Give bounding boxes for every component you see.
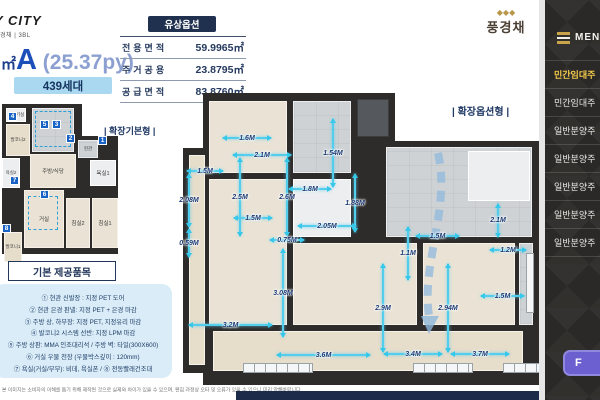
provided-item: ⑦ 욕실(거실/부부): 비데, 욕실폰 / ⑧ 전동빨래건조대	[0, 364, 172, 376]
dimension-marker: 2.94M	[442, 263, 454, 353]
floorplan-basic: 실외기실발코니2주방/식당현관욕실1욕실2거실침실2침실1발코니1 123456…	[2, 100, 118, 258]
sidebar-menu: 민간임대주 민간임대주 일반분양주 일반분양주 일반분양주 일반분양주 일반분양…	[545, 60, 600, 257]
dimension-marker: 3.7M	[450, 348, 510, 360]
dimension-label: 2.08M	[179, 197, 198, 204]
dimension-marker: 1.54M	[327, 118, 339, 188]
dimension-label: 2.1M	[490, 217, 506, 224]
dimension-marker: 1.6M	[222, 132, 272, 144]
sidebar-menu-item-label: 민간임대주	[554, 96, 595, 109]
sidebar-menu-item[interactable]: 일반분양주	[545, 229, 600, 257]
dimension-label: 1.88M	[345, 200, 364, 207]
dimension-label: 3.6M	[316, 352, 332, 359]
provided-item: ③ 주방 상, 하부장: 지정 PET, 지정유리 마감	[0, 317, 172, 329]
sidebar-menu-item-label: 일반분양주	[554, 236, 595, 249]
item-number-badge: 6	[40, 190, 49, 199]
sidebar-menu-item[interactable]: 일반분양주	[545, 201, 600, 229]
item-number-badge: 7	[10, 176, 19, 185]
dimension-label: 2.9M	[375, 305, 391, 312]
sidebar-menu-item[interactable]: 일반분양주	[545, 173, 600, 201]
dimension-marker: 0.59M	[183, 228, 195, 258]
provided-items-panel: ① 현관 신발장 : 지정 PET 도어② 현관 은경 판넬: 지정 PET +…	[0, 284, 172, 378]
dimension-label: 1.6M	[239, 135, 255, 142]
sidebar-menu-item[interactable]: 일반분양주	[545, 145, 600, 173]
dimension-marker: 1.5M	[480, 290, 525, 302]
dimension-marker: 2.5M	[234, 157, 246, 237]
sidebar-menu-item-label: 일반분양주	[554, 152, 595, 165]
dimension-marker: 2.1M	[492, 203, 504, 238]
dimension-marker: 1.5M	[415, 230, 460, 242]
left-plan-badges: 12345678	[2, 100, 118, 258]
sidebar-menu-item-label: 일반분양주	[554, 124, 595, 137]
dimension-label: 1.5M	[197, 168, 213, 175]
dimension-marker: 1.5M	[233, 212, 273, 224]
brand-emblem-icon: ◆◆◆	[474, 8, 538, 17]
sidebar-menu-item[interactable]: 민간임대주	[545, 89, 600, 117]
dimension-marker: 2.08M	[183, 173, 195, 228]
provided-item: ⑤ 주방 상판: MMA 인조대리석 / 주방 벽: 타일(300X600)	[0, 340, 172, 352]
provided-items-list: ① 현관 신발장 : 지정 PET 도어② 현관 은경 판넬: 지정 PET +…	[0, 293, 172, 376]
area-value: 59.9965㎡	[196, 40, 244, 55]
dimension-marker: 2.6M	[281, 157, 293, 237]
city-logo-subtext: 풍경채 | 3BL	[0, 30, 42, 39]
dimension-marker: 2.05M	[297, 220, 357, 232]
dimension-marker: 3.6M	[276, 349, 371, 361]
dimension-marker: 3.2M	[188, 319, 273, 331]
area-label: 공급면적	[122, 85, 167, 98]
bottom-bar	[236, 391, 540, 400]
item-number-badge: 1	[98, 136, 107, 145]
item-number-badge: 8	[2, 224, 11, 233]
dimension-label: 2.1M	[254, 152, 270, 159]
dimension-layer: 1.6M 2.1M 1.54M 1.5M 2.08M 0.59M 2.5M	[183, 93, 540, 385]
floorplan-option: 1.6M 2.1M 1.54M 1.5M 2.08M 0.59M 2.5M	[183, 93, 540, 385]
dimension-label: 1.5M	[430, 233, 446, 240]
dimension-label: 1.1M	[400, 250, 416, 257]
household-count-badge: 439세대	[14, 77, 112, 94]
dimension-label: 1.2M	[500, 247, 516, 254]
provided-item: ⑥ 거실 우물 천장 (우물박스깊이 : 120mm)	[0, 352, 172, 364]
area-label: 전용면적	[122, 41, 167, 54]
area-table-row: 전용면적 59.9965㎡	[120, 37, 246, 59]
dimension-marker: 2.9M	[377, 263, 389, 353]
dimension-marker: 1.2M	[489, 244, 527, 256]
dimension-label: 1.8M	[302, 186, 318, 193]
dimension-marker: 1.1M	[402, 226, 414, 281]
dimension-label: 1.5M	[245, 215, 261, 222]
dimension-marker: 0.75M	[269, 234, 305, 246]
dimension-marker: 3.4M	[383, 348, 443, 360]
sidebar-menu-item-label: 민간임대주	[554, 68, 595, 81]
dimension-label: 2.6M	[279, 194, 295, 201]
brand-name: 풍경채	[474, 17, 538, 36]
city-logo-text: Y CITY	[0, 13, 42, 28]
item-number-badge: 2	[66, 134, 75, 143]
paid-option-badge[interactable]: 유상옵션	[148, 16, 216, 32]
menu-button[interactable]: MENU	[557, 32, 600, 44]
dimension-label: 3.4M	[405, 351, 421, 358]
provided-item: ① 현관 신발장 : 지정 PET 도어	[0, 293, 172, 305]
dimension-label: 3.08M	[273, 290, 292, 297]
city-logo: Y CITY 풍경채 | 3BL	[0, 13, 42, 39]
area-value: 23.8795㎡	[196, 62, 244, 77]
dimension-label: 1.5M	[495, 293, 511, 300]
dimension-marker: 3.08M	[277, 248, 289, 338]
item-number-badge: 5	[40, 120, 49, 129]
unit-type: A	[16, 44, 37, 76]
hamburger-icon	[557, 32, 570, 44]
unit-title: ㎡A (25.37py)	[1, 44, 134, 77]
sidebar-menu-item[interactable]: 일반분양주	[545, 117, 600, 145]
dimension-label: 3.2M	[223, 322, 239, 329]
dimension-label: 1.54M	[323, 150, 342, 157]
area-table-row: 주거공용 23.8795㎡	[120, 59, 246, 81]
dimension-label: 0.75M	[277, 237, 296, 244]
item-number-badge: 4	[8, 112, 17, 121]
sidebar-menu-item[interactable]: 민간임대주	[545, 61, 600, 89]
sidebar: MENU 민간임대주 민간임대주 일반분양주 일반분양주 일반분양주 일반분양주…	[545, 0, 600, 400]
dimension-label: 2.05M	[317, 223, 336, 230]
provided-item: ④ 발코니2 시스템 선반: 지정 LPM 마감	[0, 328, 172, 340]
brand-logo: ◆◆◆ 풍경채	[474, 8, 538, 36]
area-label: 주거공용	[122, 63, 167, 76]
unit-area-prefix: ㎡	[1, 56, 16, 73]
sidebar-menu-item-label: 일반분양주	[554, 180, 595, 193]
dimension-label: 2.94M	[438, 305, 457, 312]
dimension-label: 0.59M	[179, 240, 198, 247]
provided-items-title: 기본 제공품목	[8, 261, 116, 281]
floorplan-viewer-screen: Y CITY 풍경채 | 3BL ㎡A (25.37py) 439세대 유상옵션…	[0, 0, 600, 400]
menu-label: MENU	[575, 32, 600, 43]
dimension-label: 2.5M	[232, 194, 248, 201]
sidebar-action-button[interactable]: F	[563, 350, 600, 376]
provided-item: ② 현관 은경 판넬: 지정 PET + 은경 마감	[0, 305, 172, 317]
dimension-label: 3.7M	[472, 351, 488, 358]
item-number-badge: 3	[52, 120, 61, 129]
sidebar-menu-item-label: 일반분양주	[554, 208, 595, 221]
